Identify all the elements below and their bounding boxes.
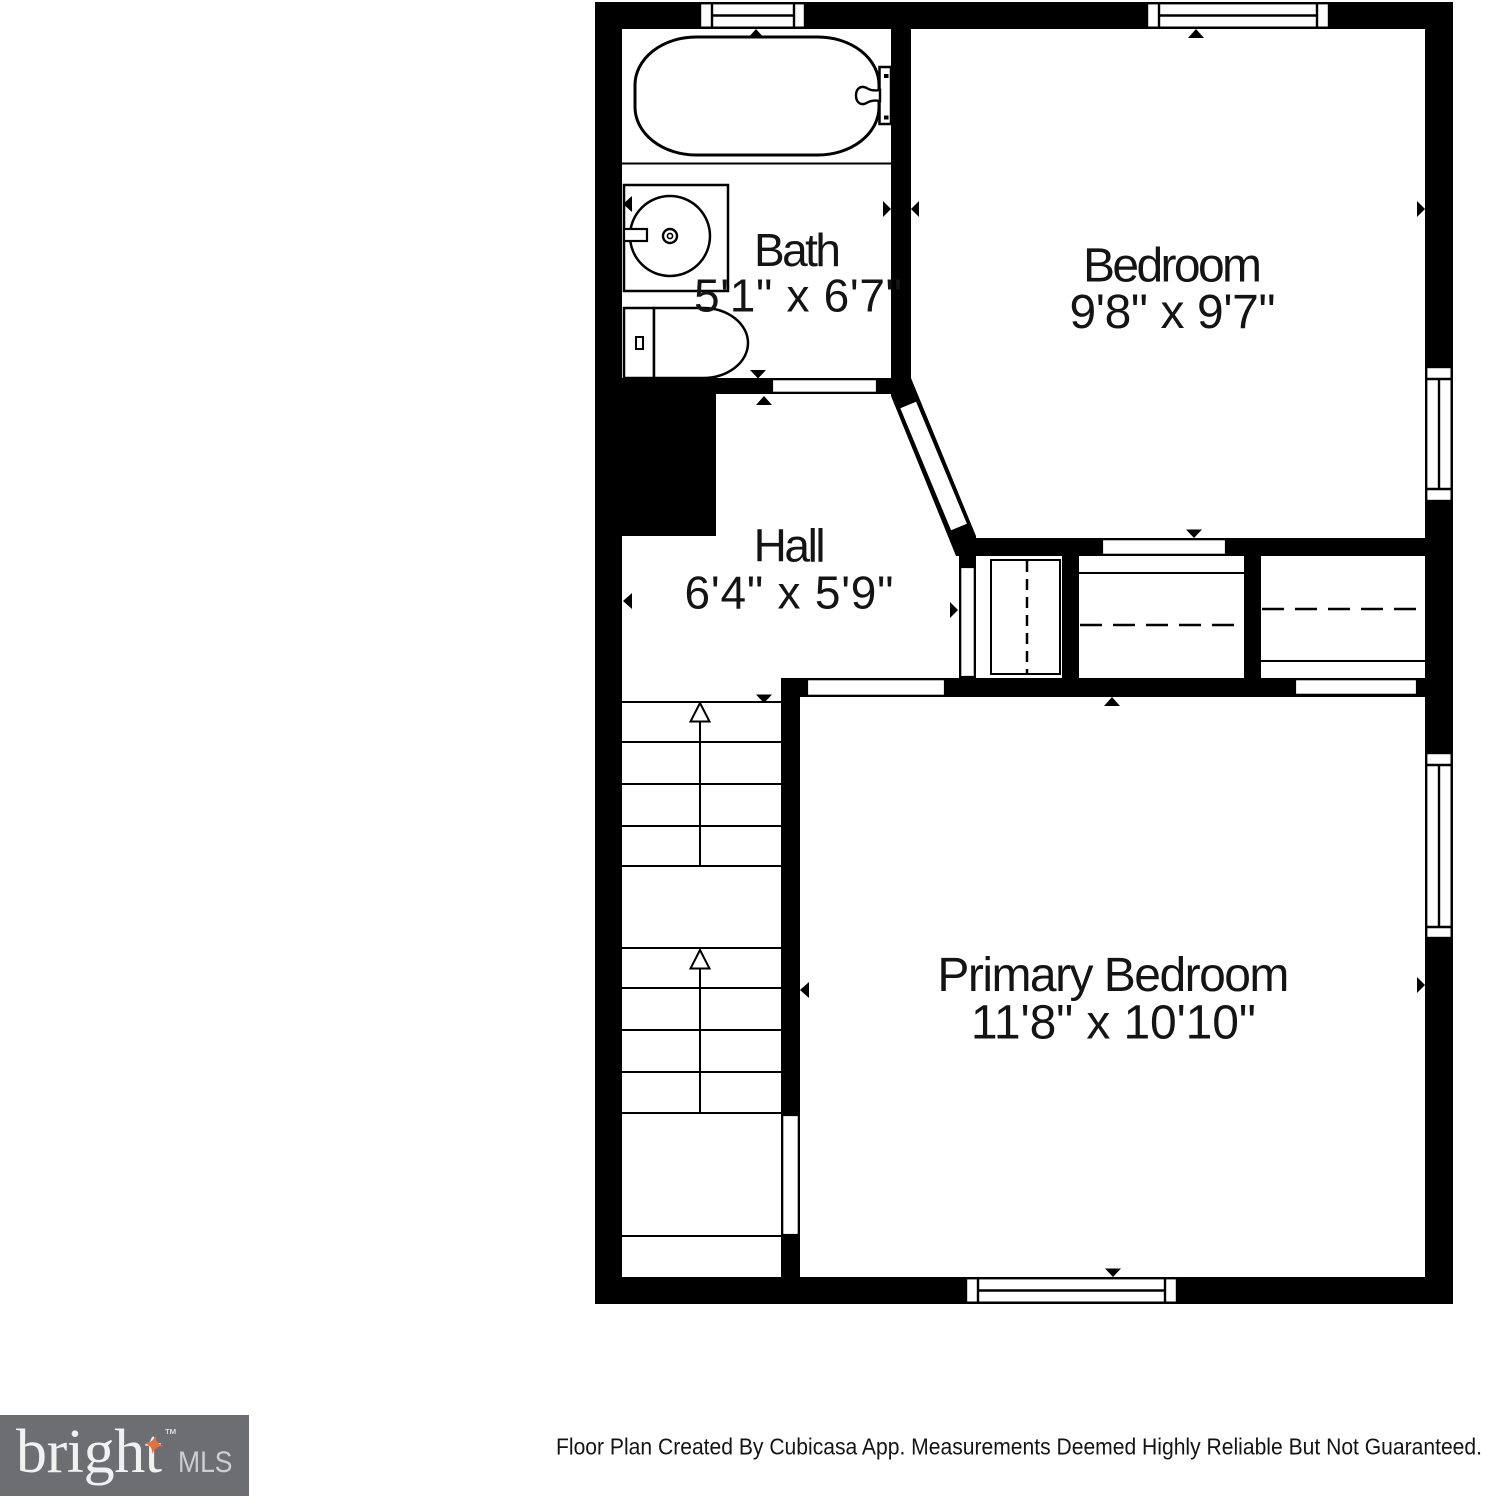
svg-text:™: ™	[164, 1426, 177, 1441]
svg-text:Floor Plan Created By Cubicasa: Floor Plan Created By Cubicasa App. Meas…	[556, 1434, 1482, 1460]
svg-text:9'8" x 9'7": 9'8" x 9'7"	[1070, 286, 1276, 339]
svg-text:11'8" x 10'10": 11'8" x 10'10"	[971, 997, 1256, 1050]
svg-text:6'4" x 5'9": 6'4" x 5'9"	[685, 567, 894, 619]
svg-text:Primary Bedroom: Primary Bedroom	[937, 949, 1289, 1002]
svg-text:MLS: MLS	[178, 1446, 233, 1479]
svg-text:Bath: Bath	[754, 224, 841, 276]
svg-text:Hall: Hall	[754, 520, 826, 572]
svg-text:5'1" x 6'7": 5'1" x 6'7"	[694, 270, 902, 322]
svg-text:bright: bright	[16, 1418, 162, 1486]
svg-text:Bedroom: Bedroom	[1083, 240, 1262, 293]
